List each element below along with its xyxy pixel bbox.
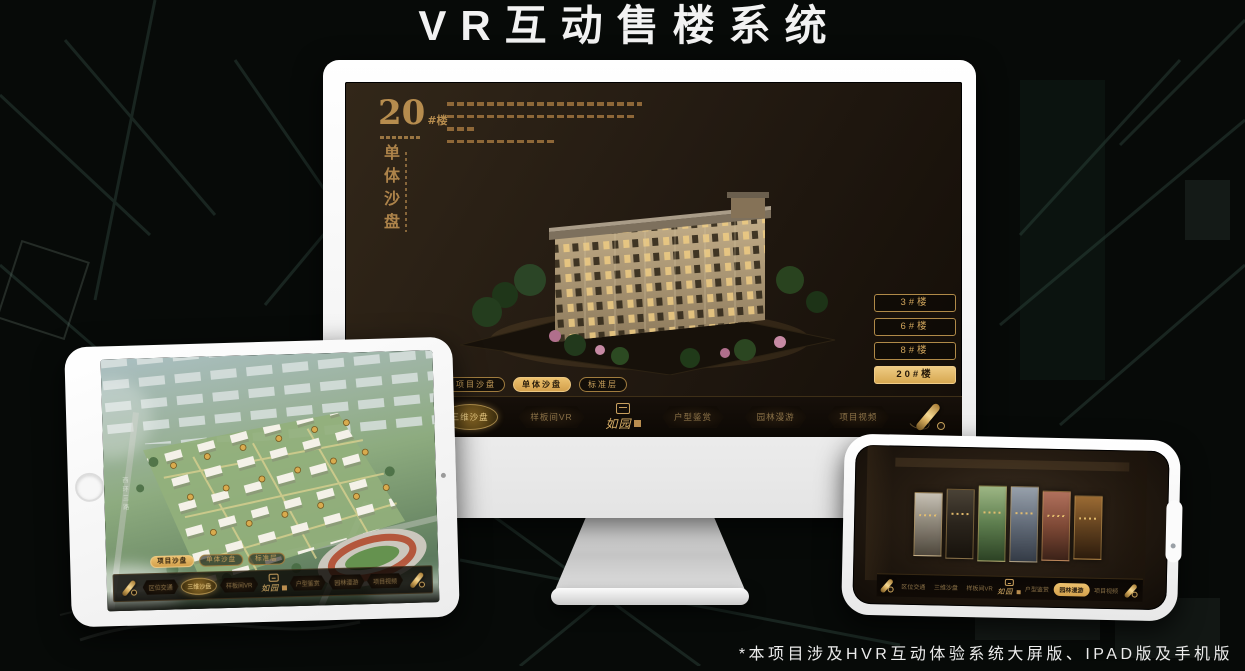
floor-button-8[interactable]: 8#楼 xyxy=(874,342,956,360)
brand-name: 如园 xyxy=(997,587,1013,597)
block-number: 20 xyxy=(378,93,425,133)
nav-item-garden-tour[interactable]: 园林漫游 xyxy=(1053,582,1089,596)
road-label: 西环三路 xyxy=(120,477,130,513)
nav-item-location-traffic[interactable]: 区位交通 xyxy=(897,579,929,593)
brand-logo: 如园 xyxy=(261,573,288,594)
brand-emblem-icon xyxy=(269,574,279,582)
scene-card-interior[interactable] xyxy=(945,489,974,560)
nav-item-3d-sandtable[interactable]: 三维沙盘 xyxy=(930,580,962,594)
brand-seal-icon xyxy=(634,420,641,427)
ipad-device: 西环三路 项目沙盘 单体沙盘 标准层 区位交通 三维沙盘 样板间VR 如园 户型… xyxy=(64,337,460,628)
building-render xyxy=(435,160,855,375)
home-button xyxy=(75,472,105,502)
view-tab-group: 项目沙盘 单体沙盘 标准层 xyxy=(447,377,627,392)
block-vertical-title: 单体沙盘 xyxy=(378,144,402,254)
scroll-menu-icon[interactable] xyxy=(910,403,948,431)
floor-button-6[interactable]: 6#楼 xyxy=(874,318,956,336)
tab-standard-floor[interactable]: 标准层 xyxy=(248,552,285,565)
nav-item-floorplan[interactable]: 户型鉴赏 xyxy=(289,575,325,591)
camera-icon xyxy=(441,473,446,478)
monitor-stand xyxy=(555,514,745,590)
interior-column-decoration xyxy=(865,445,894,581)
nav-item-project-video[interactable]: 项目视频 xyxy=(367,573,403,589)
nav-item-location-traffic[interactable]: 区位交通 xyxy=(142,579,178,595)
monitor-base xyxy=(551,588,749,605)
brand-emblem-icon xyxy=(616,403,630,414)
vertical-english-decoration xyxy=(405,152,407,232)
tab-project-sandtable[interactable]: 项目沙盘 xyxy=(150,555,194,568)
block-title: 20#楼 xyxy=(378,96,448,130)
nav-item-model-room-vr[interactable]: 样板间VR xyxy=(220,577,259,593)
phone-screen: 区位交通 三维沙盘 样板间VR 如园 户型鉴赏 园林漫游 项目视频 xyxy=(852,445,1169,611)
phone-notch xyxy=(1165,500,1182,562)
nav-item-project-video[interactable]: 项目视频 xyxy=(1090,583,1122,597)
scroll-menu-icon[interactable] xyxy=(879,577,897,593)
scroll-menu-icon[interactable] xyxy=(118,578,140,597)
brand-emblem-icon xyxy=(1004,579,1013,586)
description-text xyxy=(447,102,647,152)
block-subtitle-decoration xyxy=(380,136,420,139)
nav-item-garden-tour[interactable]: 园林漫游 xyxy=(328,574,364,590)
brand-logo: 如园 xyxy=(997,579,1020,597)
scene-card-landscape[interactable] xyxy=(977,485,1007,562)
nav-item-model-room-vr[interactable]: 样板间VR xyxy=(518,406,584,428)
brand-name: 如园 xyxy=(605,415,631,432)
scene-card-courtyard[interactable] xyxy=(913,492,942,557)
scene-card-autumn[interactable] xyxy=(1041,491,1070,562)
brand-logo: 如园 xyxy=(605,403,641,432)
scroll-menu-icon[interactable] xyxy=(405,570,427,589)
brand-name: 如园 xyxy=(261,583,279,594)
tab-project-sandtable[interactable]: 项目沙盘 xyxy=(447,377,505,392)
tab-building-sandtable[interactable]: 单体沙盘 xyxy=(513,377,571,392)
floor-button-20[interactable]: 20#楼 xyxy=(874,366,956,384)
scene-card-study[interactable] xyxy=(1073,495,1102,560)
scroll-menu-icon[interactable] xyxy=(1122,582,1140,598)
camera-icon xyxy=(1171,543,1176,548)
brand-seal-icon xyxy=(1016,590,1020,594)
nav-item-garden-tour[interactable]: 园林漫游 xyxy=(745,406,807,428)
floor-button-group: 3#楼 6#楼 8#楼 20#楼 xyxy=(874,294,956,384)
block-suffix: #楼 xyxy=(427,114,447,127)
nav-item-floorplan[interactable]: 户型鉴赏 xyxy=(1021,582,1053,596)
phone-device: 区位交通 三维沙盘 样板间VR 如园 户型鉴赏 园林漫游 项目视频 xyxy=(841,434,1181,622)
tab-standard-floor[interactable]: 标准层 xyxy=(579,377,627,392)
brand-seal-icon xyxy=(282,585,287,590)
nav-item-floorplan[interactable]: 户型鉴赏 xyxy=(662,406,724,428)
footnote-text: *本项目涉及HVR互动体验系统大屏版、IPAD版及手机版 xyxy=(739,640,1233,664)
ipad-screen: 西环三路 项目沙盘 单体沙盘 标准层 区位交通 三维沙盘 样板间VR 如园 户型… xyxy=(101,350,440,611)
tab-building-sandtable[interactable]: 单体沙盘 xyxy=(199,554,243,567)
nav-item-project-video[interactable]: 项目视频 xyxy=(827,406,889,428)
nav-item-3d-sandtable[interactable]: 三维沙盘 xyxy=(181,577,217,595)
floor-button-3[interactable]: 3#楼 xyxy=(874,294,956,312)
scene-card-building[interactable] xyxy=(1009,486,1039,563)
nav-item-model-room-vr[interactable]: 样板间VR xyxy=(962,580,997,594)
